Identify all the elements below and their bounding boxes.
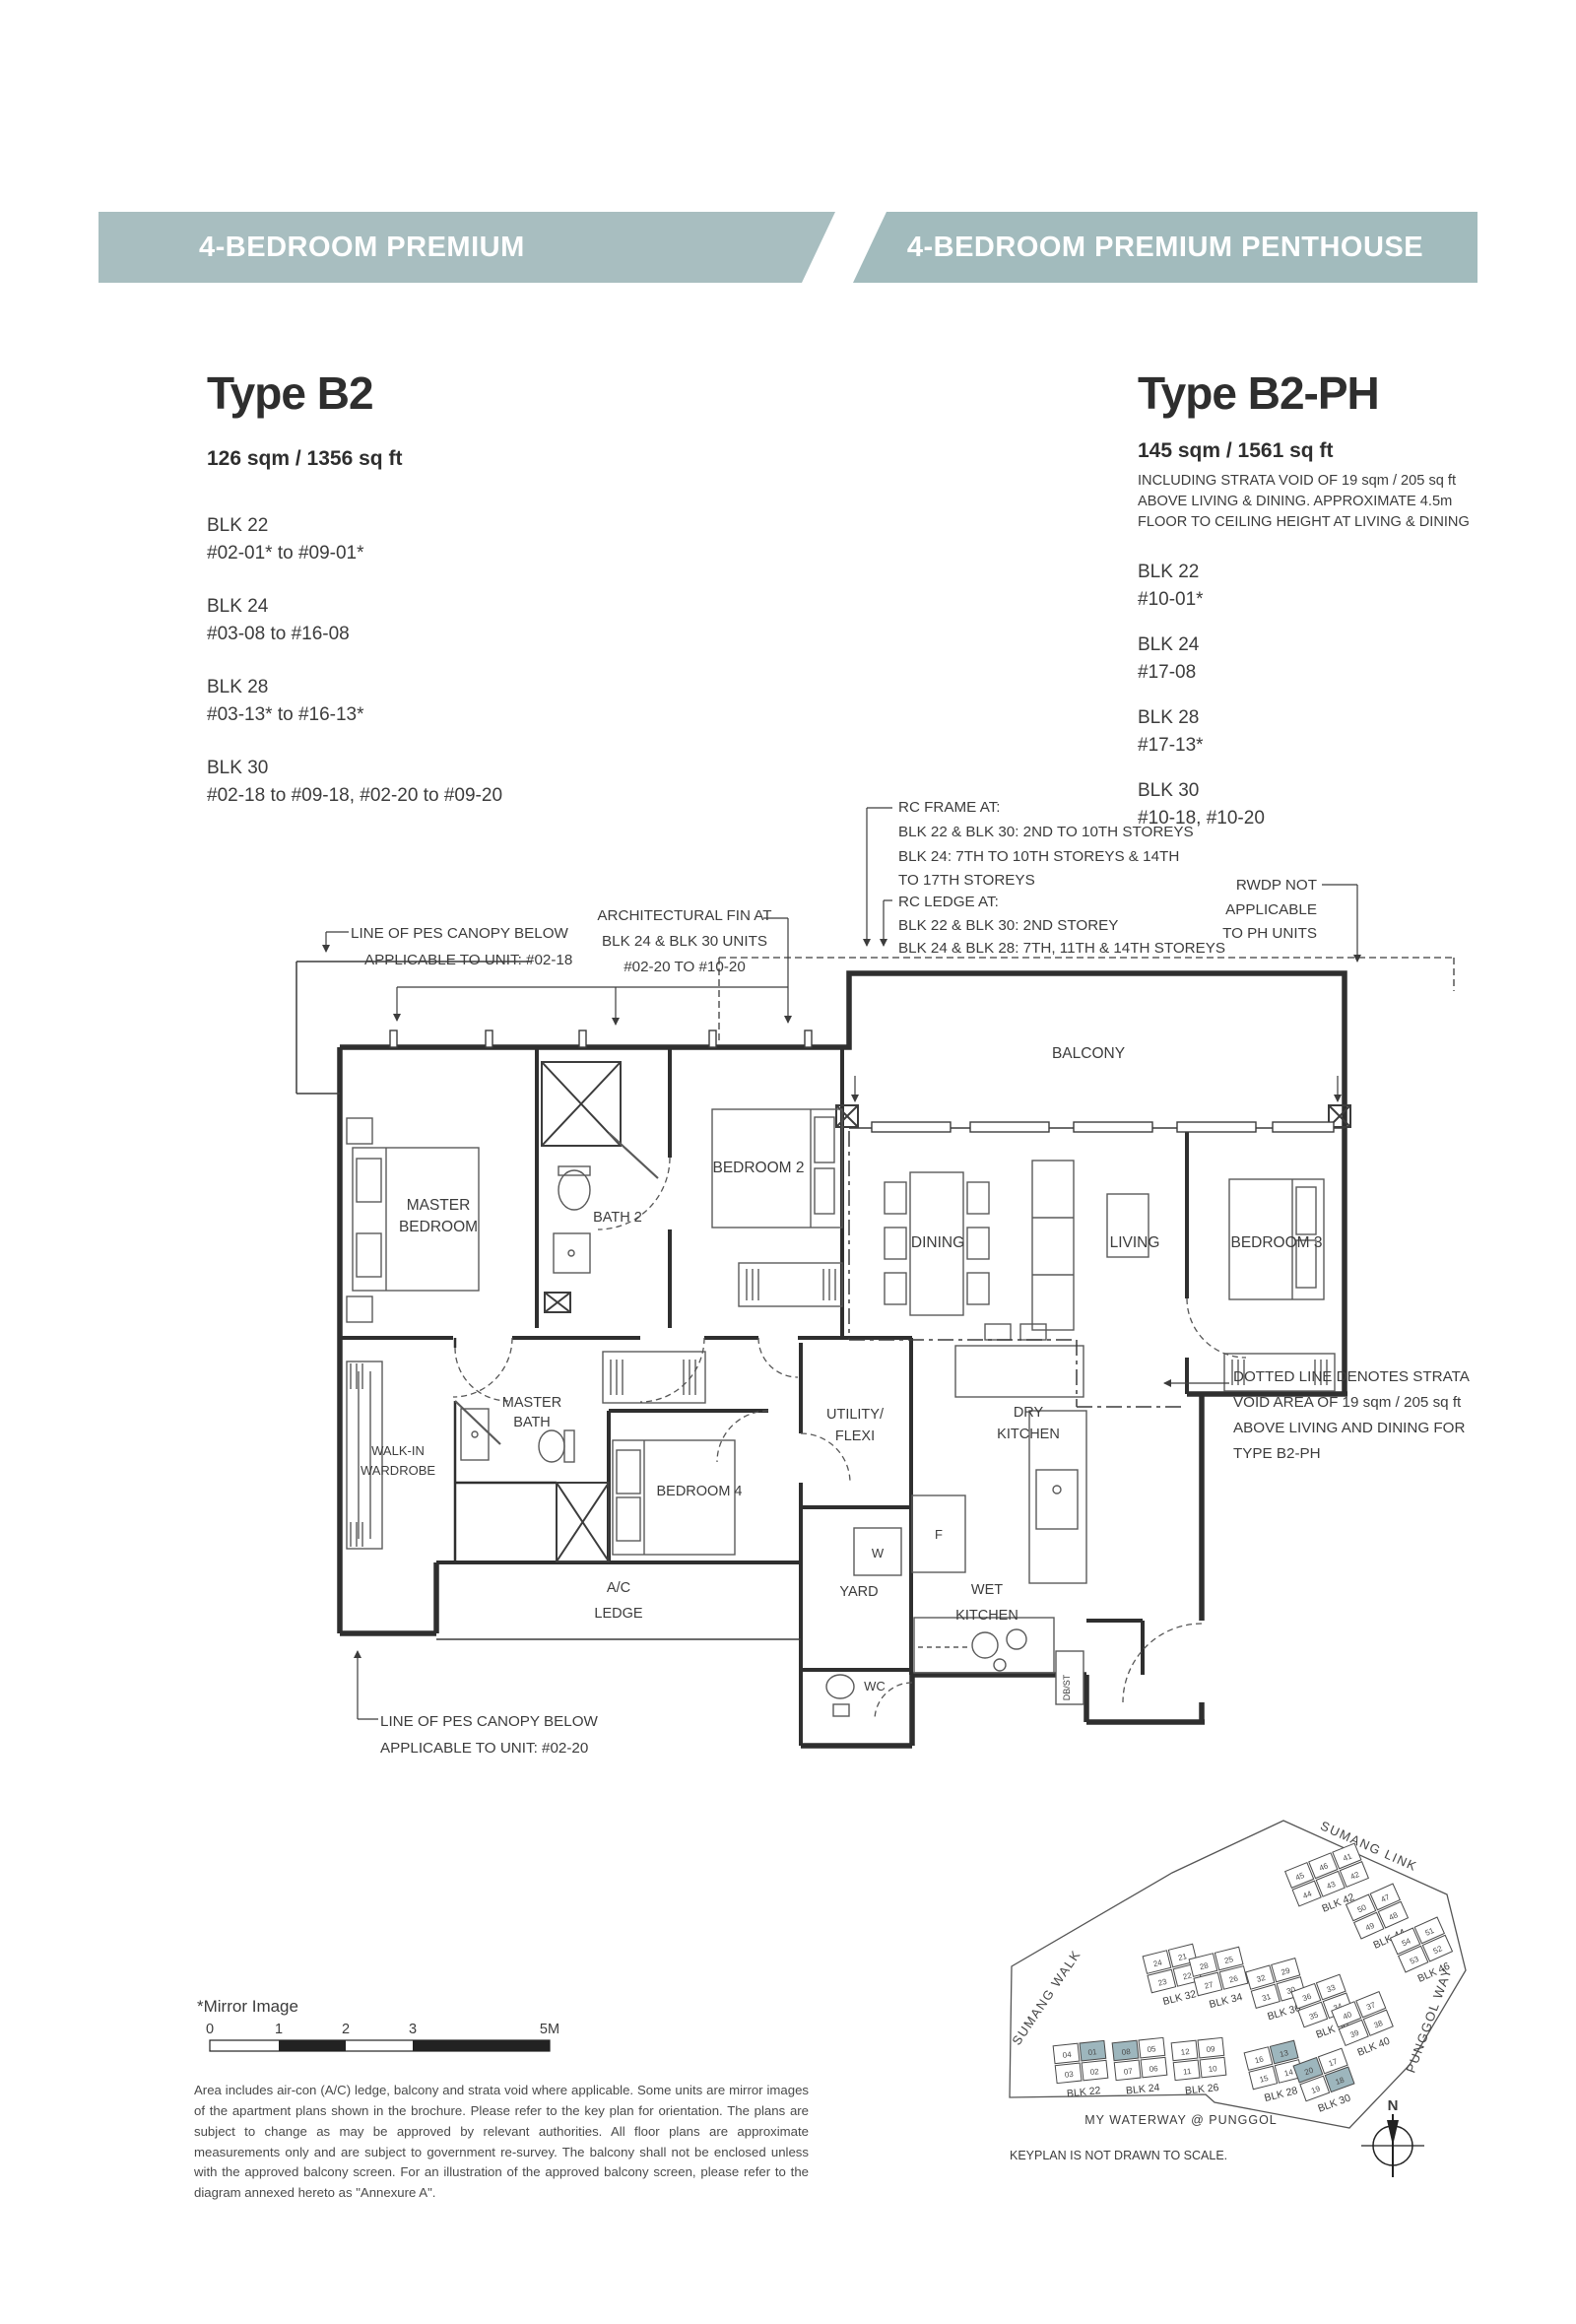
note-pes-canopy-0218: LINE OF PES CANOPY BELOW	[351, 925, 569, 942]
label-yard: YARD	[839, 1584, 878, 1600]
floorplan-walls-thin	[455, 1338, 557, 1562]
label-wet-kitchen-2: KITCHEN	[955, 1608, 1018, 1624]
svg-text:04: 04	[1062, 2050, 1072, 2060]
label-bedroom3: BEDROOM 3	[1230, 1234, 1322, 1251]
label-washer: W	[872, 1546, 885, 1560]
note-rwdp-3: TO PH UNITS	[1222, 925, 1317, 942]
scale-0: 0	[206, 2022, 214, 2037]
scale-3: 3	[409, 2022, 417, 2037]
road-punggol-way: PUNGGOL WAY	[1403, 1965, 1455, 2075]
label-utility-2: FLEXI	[835, 1428, 875, 1444]
note-rc-frame-2: BLK 22 & BLK 30: 2ND TO 10TH STOREYS	[898, 824, 1194, 840]
svg-text:08: 08	[1121, 2047, 1131, 2057]
note-rwdp-2: APPLICABLE	[1225, 901, 1317, 918]
note-strata-void-4: TYPE B2-PH	[1233, 1445, 1321, 1462]
svg-text:07: 07	[1123, 2067, 1133, 2077]
svg-text:01: 01	[1087, 2047, 1097, 2057]
keyplan-block-34: 2825 2726 BLK 34	[1189, 1947, 1252, 2013]
note-arch-fin-3: #02-20 TO #10-20	[624, 959, 746, 975]
label-dining: DINING	[911, 1234, 964, 1251]
label-fridge: F	[935, 1527, 943, 1542]
label-walkin-2: WARDROBE	[361, 1463, 435, 1478]
note-rc-frame: RC FRAME AT:	[898, 799, 1001, 816]
keyplan-block-24: 0805 0706 BLK 24	[1112, 2037, 1169, 2097]
disclaimer-text: Area includes air-con (A/C) ledge, balco…	[194, 2081, 809, 2204]
label-wc: WC	[864, 1679, 886, 1693]
label-ac-ledge-2: LEDGE	[594, 1606, 642, 1622]
scale-2: 2	[342, 2022, 350, 2037]
label-walkin: WALK-IN	[371, 1443, 425, 1458]
scale-bar: *Mirror Image 0 1 2 3 5M	[197, 1997, 559, 2051]
keyplan-block-22: 0401 0302 BLK 22	[1053, 2040, 1110, 2100]
project-name: MY WATERWAY @ PUNGGOL	[1084, 2113, 1278, 2127]
label-bedroom2: BEDROOM 2	[712, 1160, 804, 1176]
scale-1: 1	[275, 2022, 283, 2037]
svg-text:BLK 22: BLK 22	[1066, 2085, 1101, 2100]
keyplan-block-26: 1209 1110 BLK 26	[1171, 2037, 1228, 2097]
note-pes-canopy-0220: LINE OF PES CANOPY BELOW	[380, 1713, 599, 1730]
label-dbst: DB/ST	[1062, 1674, 1072, 1700]
svg-text:BLK 32: BLK 32	[1161, 1988, 1197, 2008]
label-utility: UTILITY/	[826, 1407, 885, 1423]
label-master-bedroom-2: BEDROOM	[399, 1219, 478, 1235]
note-rwdp: RWDP NOT	[1236, 877, 1317, 894]
label-ac-ledge: A/C	[607, 1580, 630, 1596]
note-pes-canopy-0220-2: APPLICABLE TO UNIT: #02-20	[380, 1740, 588, 1757]
svg-text:12: 12	[1180, 2047, 1190, 2057]
svg-text:06: 06	[1149, 2064, 1158, 2074]
mirror-image-note: *Mirror Image	[197, 1997, 298, 2016]
svg-text:BLK 34: BLK 34	[1208, 1991, 1243, 2011]
north-label: N	[1388, 2097, 1399, 2114]
note-arch-fin-2: BLK 24 & BLK 30 UNITS	[602, 933, 767, 950]
label-master-bath: MASTER	[502, 1395, 561, 1411]
svg-text:BLK 28: BLK 28	[1263, 2085, 1298, 2104]
scale-5m: 5M	[540, 2022, 559, 2037]
label-living: LIVING	[1110, 1234, 1160, 1251]
label-bath2: BATH 2	[593, 1210, 642, 1226]
label-balcony: BALCONY	[1052, 1045, 1125, 1062]
note-arch-fin: ARCHITECTURAL FIN AT	[597, 907, 771, 924]
svg-text:09: 09	[1206, 2044, 1215, 2054]
label-bedroom4: BEDROOM 4	[656, 1484, 742, 1499]
note-rc-frame-4: TO 17TH STOREYS	[898, 872, 1035, 889]
note-pes-canopy-0218-2: APPLICABLE TO UNIT: #02-18	[364, 952, 572, 968]
label-wet-kitchen: WET	[971, 1582, 1003, 1598]
note-rc-frame-3: BLK 24: 7TH TO 10TH STOREYS & 14TH	[898, 848, 1179, 865]
keyplan-note: KEYPLAN IS NOT DRAWN TO SCALE.	[1010, 2149, 1227, 2162]
label-dry-kitchen: DRY	[1014, 1405, 1044, 1421]
note-rc-ledge-2: BLK 22 & BLK 30: 2ND STOREY	[898, 917, 1118, 934]
svg-text:10: 10	[1208, 2064, 1217, 2074]
label-master-bath-2: BATH	[513, 1415, 551, 1430]
note-strata-void-3: ABOVE LIVING AND DINING FOR	[1233, 1420, 1465, 1436]
svg-text:05: 05	[1147, 2044, 1156, 2054]
svg-text:11: 11	[1183, 2067, 1193, 2077]
note-strata-void-2: VOID AREA OF 19 sqm / 205 sq ft	[1233, 1394, 1462, 1411]
svg-text:02: 02	[1089, 2067, 1099, 2077]
svg-text:03: 03	[1064, 2070, 1074, 2080]
note-rc-ledge-3: BLK 24 & BLK 28: 7TH, 11TH & 14TH STOREY…	[898, 940, 1225, 957]
label-dry-kitchen-2: KITCHEN	[997, 1427, 1060, 1442]
label-master-bedroom: MASTER	[407, 1197, 471, 1214]
keyplan: 0401 0302 BLK 22 0805 0706 BLK 24 1209 1…	[1009, 1818, 1466, 2177]
floorplan-brochure-page: 4-BEDROOM PREMIUM 4-BEDROOM PREMIUM PENT…	[0, 0, 1576, 2324]
note-rc-ledge: RC LEDGE AT:	[898, 894, 999, 910]
keyplan-block-30: 2017 1918 BLK 30	[1293, 2048, 1360, 2117]
note-strata-void: DOTTED LINE DENOTES STRATA	[1233, 1368, 1471, 1385]
north-compass-icon	[1361, 2114, 1424, 2177]
svg-text:BLK 26: BLK 26	[1184, 2082, 1219, 2097]
keyplan-block-32: 2421 2322 BLK 32	[1143, 1944, 1206, 2010]
floorplan-drawing: MASTER BEDROOM BATH 2 BEDROOM 2 BALCONY …	[0, 0, 1576, 2324]
